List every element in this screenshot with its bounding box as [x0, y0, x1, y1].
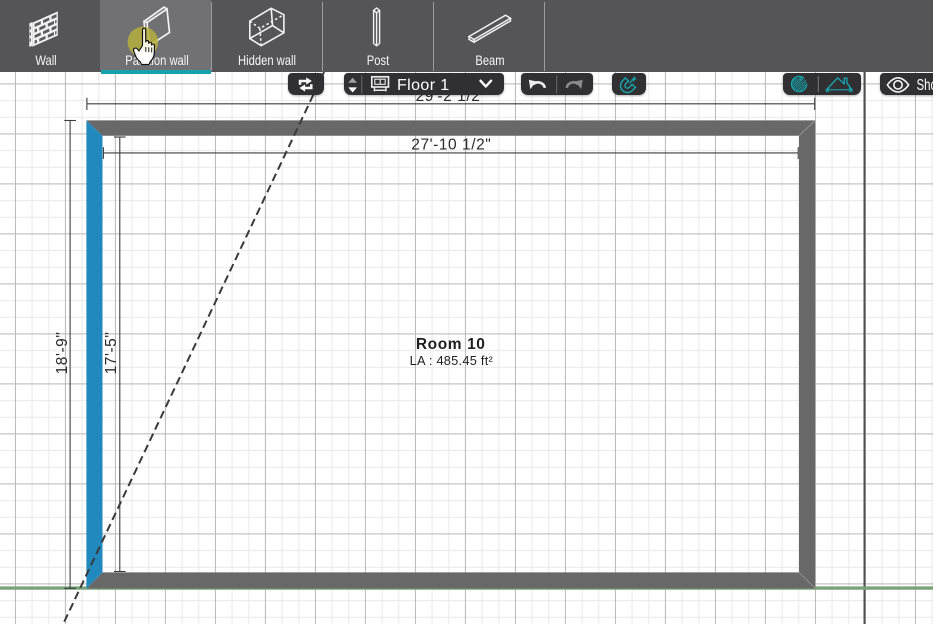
svg-text:27'-10 1/2": 27'-10 1/2" — [411, 136, 491, 153]
svg-text:LA : 485.45 ft²: LA : 485.45 ft² — [410, 353, 494, 368]
svg-text:Show: Show — [917, 77, 933, 94]
svg-text:Floor 1: Floor 1 — [397, 77, 450, 94]
svg-text:Room 10: Room 10 — [416, 336, 486, 353]
svg-text:17'-5": 17'-5" — [103, 332, 120, 375]
svg-text:18'-9": 18'-9" — [54, 332, 71, 375]
